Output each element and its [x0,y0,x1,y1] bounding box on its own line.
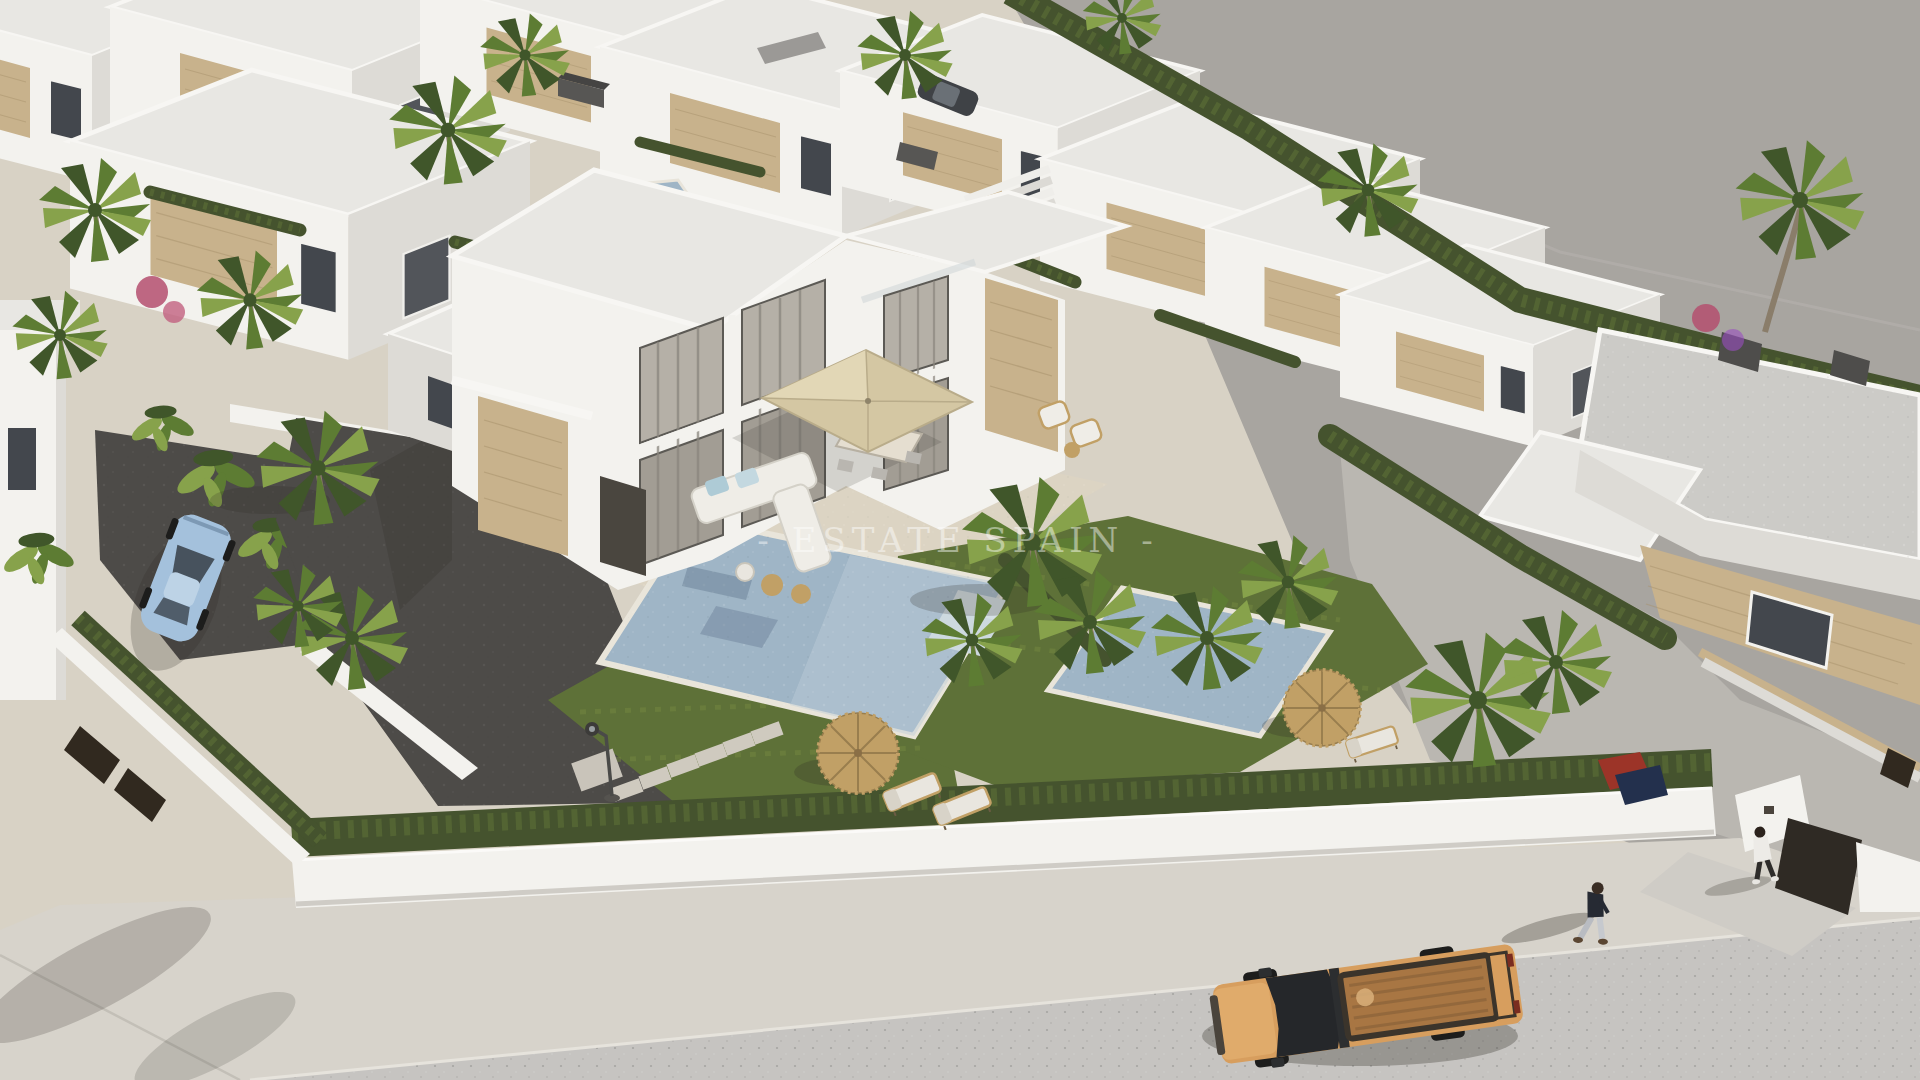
straw-parasol [1284,670,1360,746]
mailbox [1764,806,1774,814]
bougainvillea [1692,304,1720,332]
side-table [1064,442,1080,458]
palm-shadow [210,486,330,514]
stone-panel [478,396,568,556]
watermark-text: - ESTATE SPAIN - [757,520,1158,560]
bougainvillea [163,301,185,323]
leg [1598,917,1603,938]
scene: - ESTATE SPAIN - [0,0,1920,1080]
bougainvillea [1722,329,1744,351]
side-table [736,563,754,581]
straw-parasol [818,713,898,793]
render-canvas: - ESTATE SPAIN - [0,0,1920,1080]
bougainvillea [136,276,168,308]
entry-door [600,476,646,576]
left-building-window [8,428,36,490]
pouf [791,584,811,604]
mirror [1271,1057,1285,1068]
pouf [761,574,783,596]
mirror [1258,967,1272,978]
